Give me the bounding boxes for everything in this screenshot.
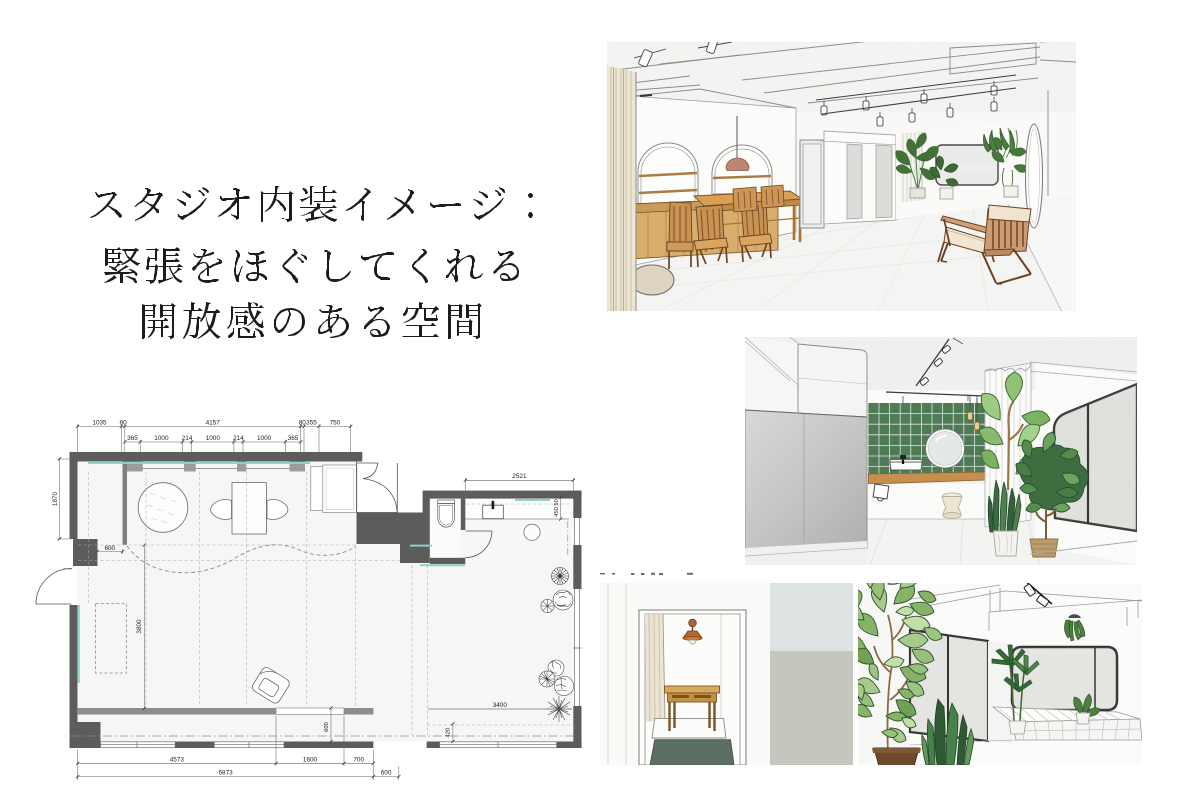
svg-text:1600: 1600 [303, 756, 318, 763]
svg-text:600: 600 [324, 722, 330, 732]
svg-text:1000: 1000 [206, 435, 221, 442]
svg-text:214: 214 [233, 435, 244, 442]
svg-text:2521: 2521 [512, 473, 527, 480]
svg-text:600: 600 [381, 770, 392, 777]
svg-text:80: 80 [120, 420, 128, 427]
svg-text:4157: 4157 [206, 420, 221, 427]
svg-text:1000: 1000 [257, 435, 272, 442]
svg-text:1870: 1870 [52, 491, 59, 506]
svg-text:3800: 3800 [136, 619, 143, 634]
svg-text:355: 355 [306, 420, 317, 427]
svg-text:1035: 1035 [92, 420, 107, 427]
svg-text:420: 420 [446, 728, 452, 738]
svg-text:4573: 4573 [170, 756, 185, 763]
svg-text:700: 700 [353, 756, 364, 763]
svg-text:365: 365 [127, 435, 138, 442]
svg-text:80: 80 [299, 420, 307, 427]
svg-text:365: 365 [288, 435, 299, 442]
svg-text:214: 214 [182, 435, 193, 442]
svg-text:450 50: 450 50 [554, 499, 560, 517]
svg-text:6873: 6873 [218, 770, 233, 777]
svg-text:1000: 1000 [154, 435, 169, 442]
svg-text:750: 750 [330, 420, 341, 427]
svg-text:600: 600 [104, 545, 115, 552]
svg-text:3400: 3400 [493, 702, 508, 709]
